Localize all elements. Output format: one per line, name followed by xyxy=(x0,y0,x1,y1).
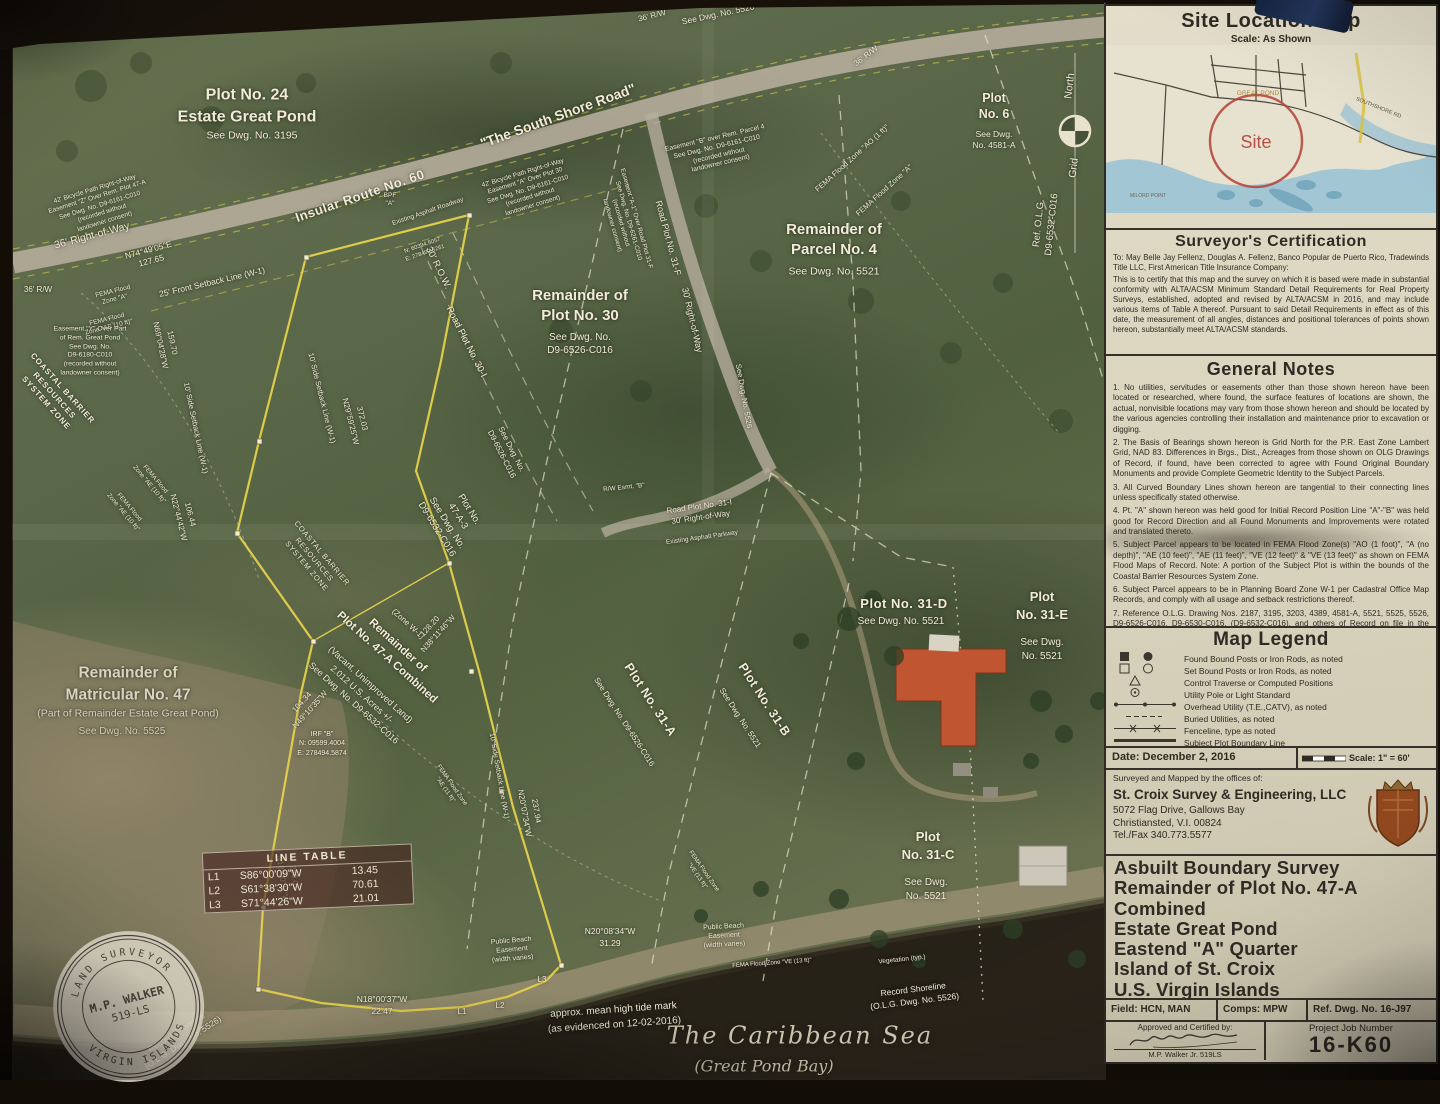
title-panel: Site Location Map Scale: As Shown xyxy=(1104,4,1438,1064)
certification-body: This is to certify that this map and the… xyxy=(1113,275,1429,335)
field-crew: Field: HCN, MAN xyxy=(1106,1000,1218,1020)
map-legend-section: Map Legend Found Bound Posts or Iron Rod… xyxy=(1106,628,1436,748)
approved-by-label: Approved and Certified by: xyxy=(1106,1022,1264,1032)
approval-cell: Approved and Certified by: M.P. Walker J… xyxy=(1106,1022,1266,1060)
general-note: 1. No utilities, servitudes or easements… xyxy=(1113,383,1429,435)
building-white-roof xyxy=(929,634,960,652)
title-block-line: Combined xyxy=(1114,899,1428,919)
legend-label: Control Traverse or Computed Positions xyxy=(1184,678,1333,688)
map-scale: Scale: 1" = 60' xyxy=(1298,748,1436,768)
title-block-line: U.S. Virgin Islands xyxy=(1114,980,1428,1000)
ref-dwg-no: Ref. Dwg. No. 16-J97 xyxy=(1308,1000,1436,1020)
approver-name: M.P. Walker Jr. 519LS xyxy=(1114,1049,1256,1059)
title-block-line: Eastend "A" Quarter xyxy=(1114,939,1428,959)
survey-sheet: LAND SURVEYOR VIRGIN ISLANDS M.P. WALKER… xyxy=(0,0,1440,1080)
drawing-title-block: Asbuilt Boundary SurveyRemainder of Plot… xyxy=(1106,856,1436,1000)
company-crest-icon xyxy=(1365,776,1431,850)
comps-by: Comps: MPW xyxy=(1218,1000,1308,1020)
certification-addressees: To: May Belle Jay Fellenz, Douglas A. Fe… xyxy=(1113,253,1429,273)
driveway xyxy=(771,471,1037,799)
general-note: 5. Subject Parcel appears to be located … xyxy=(1113,540,1429,582)
site-location-map-section: Site Location Map Scale: As Shown xyxy=(1106,6,1436,230)
general-note: 4. Pt. "A" shown hereon was held good fo… xyxy=(1113,506,1429,537)
front-setback-line xyxy=(151,185,629,311)
road-plot-30I-edge1 xyxy=(421,247,557,521)
general-note: 6. Subject Parcel appears to be in Plann… xyxy=(1113,585,1429,606)
title-block-line: Remainder of Plot No. 47-A xyxy=(1114,878,1428,898)
legend-label: Subject Plot Boundary Line xyxy=(1184,738,1285,748)
map-legend-title: Map Legend xyxy=(1112,629,1430,651)
scale-bar-icon xyxy=(1302,755,1346,762)
subject-boundary-icon xyxy=(1112,734,1184,748)
road-plot-30I-edge2 xyxy=(453,233,593,511)
inset-label-milord-point: MILORD POINT xyxy=(1130,193,1166,199)
north-arrow-icon xyxy=(1055,53,1095,253)
scale-text: Scale: 1" = 60' xyxy=(1349,753,1410,763)
project-job-number: 16-K60 xyxy=(1266,1034,1436,1056)
parcel-dividers xyxy=(467,35,1103,981)
surveyor-block: Surveyed and Mapped by the offices of: S… xyxy=(1106,770,1436,856)
road-plot-31F xyxy=(651,113,771,471)
south-shore-road xyxy=(13,27,1105,263)
site-label: Site xyxy=(1240,132,1271,152)
legend-label: Set Bound Posts or Iron Rods, as noted xyxy=(1184,666,1332,676)
aerial-map: LAND SURVEYOR VIRGIN ISLANDS M.P. WALKER… xyxy=(12,2,1106,1080)
legend-label: Overhead Utility (T.E.,CATV), as noted xyxy=(1184,702,1327,712)
signature xyxy=(1125,1032,1245,1048)
handwriting-mark xyxy=(31,4,119,7)
survey-date: Date: December 2, 2016 xyxy=(1106,748,1298,768)
site-map-scale: Scale: As Shown xyxy=(1106,34,1436,45)
general-notes-body: 1. No utilities, servitudes or easements… xyxy=(1113,383,1429,628)
general-notes-title: General Notes xyxy=(1113,359,1429,380)
date-scale-row: Date: December 2, 2016 Scale: 1" = 60' xyxy=(1106,748,1436,770)
building-orange-roof xyxy=(896,649,1006,746)
certification-title: Surveyor's Certification xyxy=(1113,233,1429,251)
general-note: 2. The Basis of Bearings shown hereon is… xyxy=(1113,438,1429,480)
legend-label: Utility Pole or Light Standard xyxy=(1184,690,1290,700)
fields-row: Field: HCN, MAN Comps: MPW Ref. Dwg. No.… xyxy=(1106,1000,1436,1022)
site-location-map-title: Site Location Map xyxy=(1106,6,1436,33)
building-white xyxy=(1019,846,1067,886)
inset-label-great-pond: GREAT POND xyxy=(1237,90,1280,97)
shed-2 xyxy=(983,787,998,798)
site-location-inset-map: Site GREAT POND SOUTHSHORE RD MILORD POI… xyxy=(1106,45,1436,213)
title-block-line: Estate Great Pond xyxy=(1114,919,1428,939)
legend-row: Subject Plot Boundary Line xyxy=(1112,737,1430,748)
general-note: 3. All Curved Boundary Lines shown hereo… xyxy=(1113,483,1429,504)
general-notes-section: General Notes 1. No utilities, servitude… xyxy=(1106,356,1436,628)
general-note: 7. Reference O.L.G. Drawing Nos. 2187, 3… xyxy=(1113,609,1429,628)
shed-1 xyxy=(953,763,971,776)
title-block-line: Island of St. Croix xyxy=(1114,959,1428,979)
line-table: LINE TABLE L1S86°00'09"W13.45L2S61°38'30… xyxy=(202,843,414,913)
forest-texture xyxy=(56,52,1073,433)
legend-label: Buried Utilities, as noted xyxy=(1184,714,1274,724)
road-plot-31I xyxy=(603,471,771,533)
job-cell: Project Job Number 16-K60 xyxy=(1266,1022,1436,1060)
approval-row: Approved and Certified by: M.P. Walker J… xyxy=(1106,1022,1436,1060)
title-block-line: Asbuilt Boundary Survey xyxy=(1114,858,1428,878)
legend-label: Fenceline, type as noted xyxy=(1184,726,1275,736)
surveyors-certification-section: Surveyor's Certification To: May Belle J… xyxy=(1106,230,1436,356)
legend-label: Found Bound Posts or Iron Rods, as noted xyxy=(1184,654,1343,664)
